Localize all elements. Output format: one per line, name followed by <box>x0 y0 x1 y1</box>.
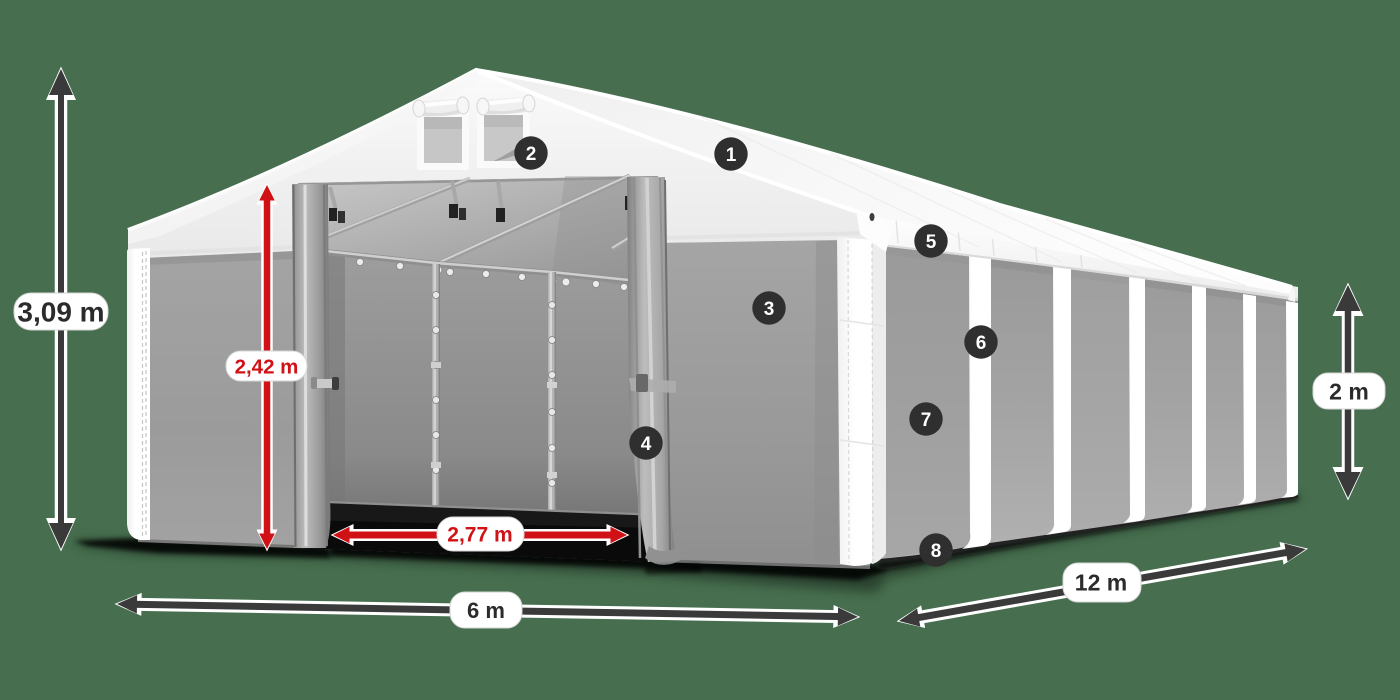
svg-text:2 m: 2 m <box>1329 378 1369 404</box>
svg-text:6: 6 <box>976 333 987 354</box>
svg-text:1: 1 <box>726 145 737 166</box>
svg-text:2,42 m: 2,42 m <box>235 355 299 378</box>
svg-text:6 m: 6 m <box>467 598 505 623</box>
svg-text:2,77 m: 2,77 m <box>447 524 512 547</box>
svg-text:3: 3 <box>764 299 775 320</box>
svg-text:12 m: 12 m <box>1075 570 1127 596</box>
svg-text:2: 2 <box>526 144 537 165</box>
svg-text:8: 8 <box>931 541 942 562</box>
svg-text:5: 5 <box>926 232 937 253</box>
svg-text:7: 7 <box>921 410 932 431</box>
svg-text:3,09 m: 3,09 m <box>17 297 104 328</box>
svg-text:4: 4 <box>641 434 652 455</box>
